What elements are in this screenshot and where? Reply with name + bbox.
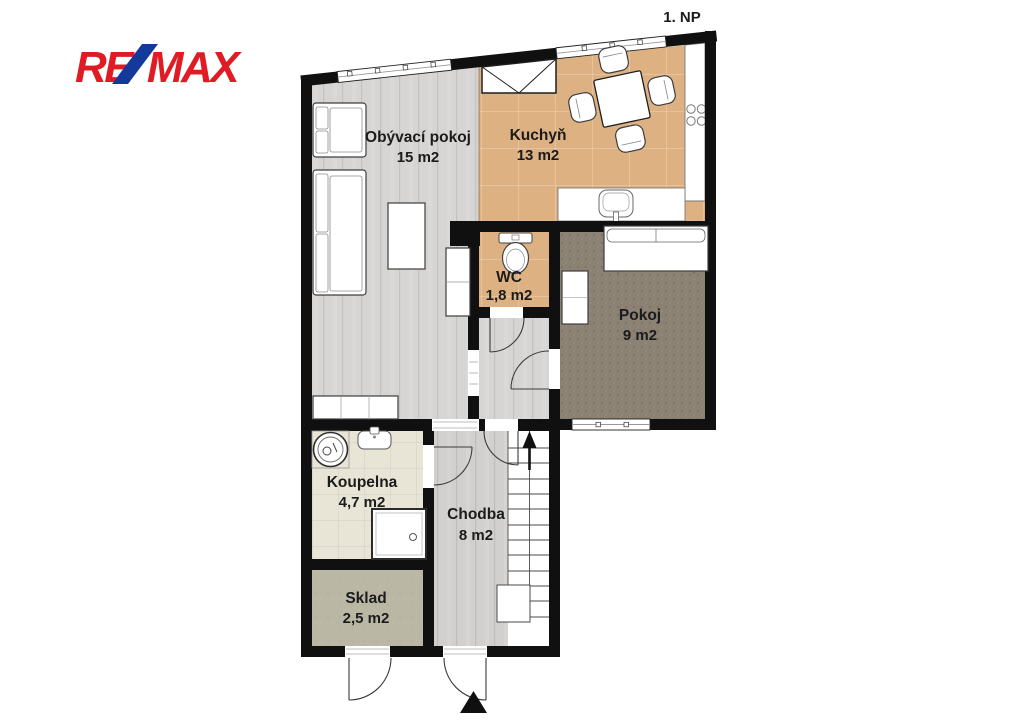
logo-max: MAX (147, 43, 242, 92)
stairs-landing (497, 585, 530, 622)
floorplan-page: RE MAX 1. NP (0, 0, 1024, 724)
opening-wc (490, 307, 523, 318)
coffee-table (388, 203, 425, 269)
sideboard (313, 396, 398, 419)
cabinet (446, 248, 470, 316)
sklad-floor (312, 570, 423, 646)
floor-label: 1. NP (663, 9, 701, 26)
opening-living-chodba (432, 419, 478, 431)
wall-sklad-right (423, 570, 434, 657)
opening-koupelna (423, 445, 434, 488)
floorplan-canvas: RE MAX 1. NP (0, 0, 1024, 724)
sofa (313, 170, 366, 295)
opening-pokoj (549, 349, 560, 389)
washing-machine-icon (314, 433, 348, 467)
label-obyvaci-pokoj: Obývací pokoj (365, 129, 471, 146)
label-sklad: Sklad (345, 590, 386, 607)
label-pokoj-area: 9 m2 (623, 327, 657, 344)
label-koupelna: Koupelna (327, 474, 398, 491)
label-sklad-area: 2,5 m2 (343, 610, 390, 627)
label-koupelna-area: 4,7 m2 (339, 494, 386, 511)
wall-chodba-right (549, 419, 560, 657)
wall-koupelna-right-a (423, 431, 434, 445)
opening-sklad-exterior (345, 646, 390, 657)
window-pokoj (572, 419, 650, 430)
shower-icon (372, 509, 426, 559)
wall-pokoj-left-b (549, 389, 560, 419)
wall-wc-bottom-a (479, 307, 490, 318)
label-chodba: Chodba (447, 506, 505, 523)
wardrobe (562, 271, 588, 324)
wall-lobby-bottom-a (479, 419, 485, 431)
label-obyvaci-pokoj-area: 15 m2 (397, 149, 440, 166)
bed (604, 226, 708, 274)
dining-table (594, 71, 651, 128)
remax-logo: RE MAX (75, 43, 242, 92)
label-pokoj: Pokoj (619, 307, 661, 324)
door-sklad (349, 658, 391, 700)
wall-koupelna-sklad-divider (301, 559, 434, 570)
label-wc-area: 1,8 m2 (486, 287, 533, 304)
opening-lobby-chodba (485, 419, 518, 431)
door-entrance (444, 658, 486, 700)
label-chodba-area: 8 m2 (459, 527, 493, 544)
label-wc: WC (496, 269, 522, 286)
opening-entrance (443, 646, 487, 657)
wall-lobby-bottom-b (518, 419, 560, 431)
armchair (313, 103, 366, 157)
label-kuchyn: Kuchyň (510, 127, 567, 144)
wall-pokoj-left-a (549, 221, 560, 349)
label-kuchyn-area: 13 m2 (517, 147, 560, 164)
